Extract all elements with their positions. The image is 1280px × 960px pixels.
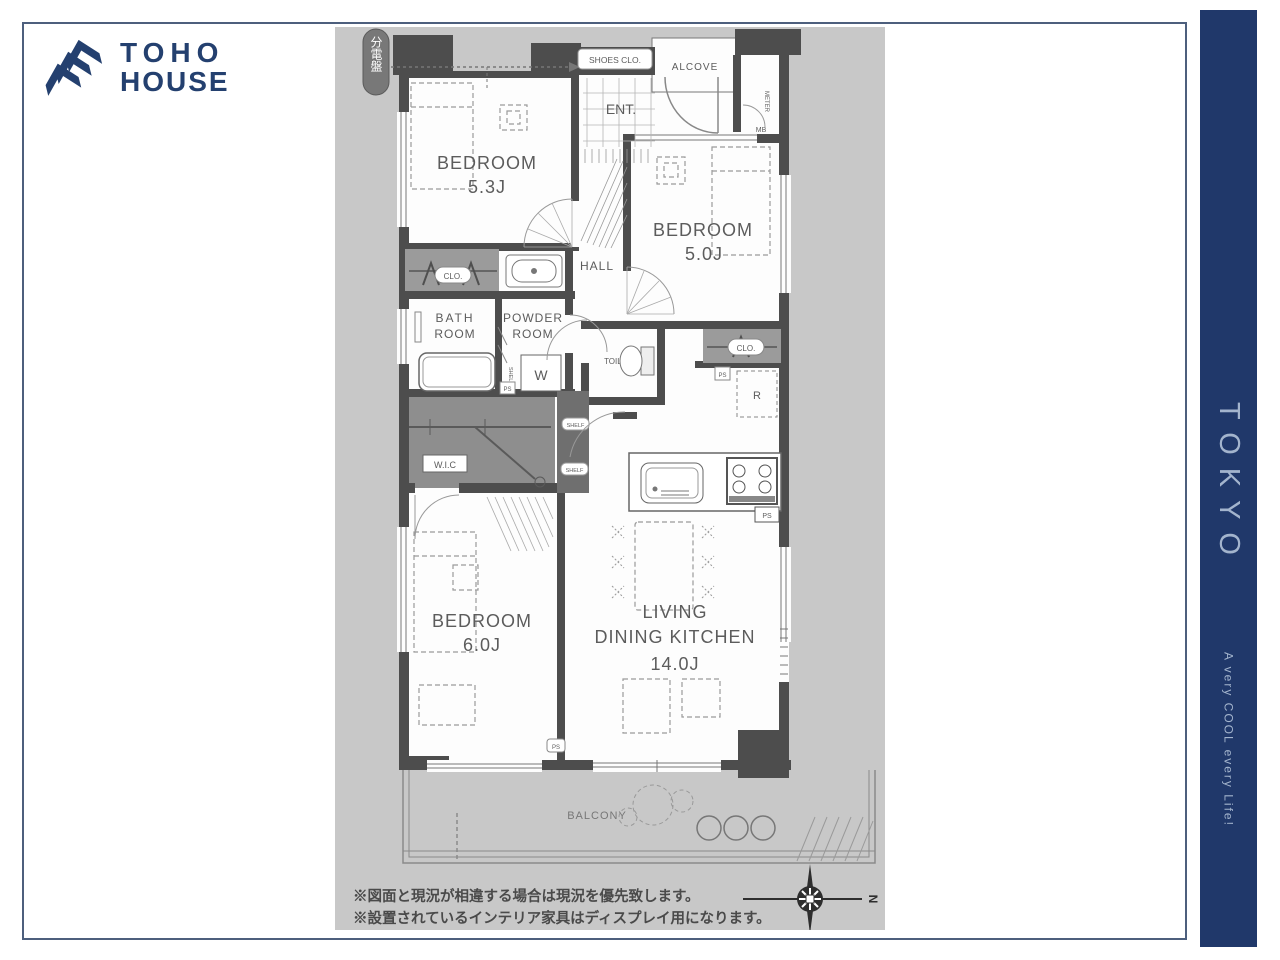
ps1-label: PS bbox=[503, 387, 511, 393]
toho-house-logo-icon bbox=[40, 36, 106, 98]
bedroom3-size: 6.0J bbox=[463, 635, 501, 655]
ps3-label: PS bbox=[762, 513, 772, 520]
closet1: CLO. bbox=[405, 249, 499, 291]
compass-north-label: N bbox=[866, 895, 880, 904]
ldk-label-line1: LIVING bbox=[642, 602, 707, 622]
brand-name-line1: TOHO bbox=[120, 38, 230, 67]
meter-box-label: MB bbox=[756, 127, 767, 134]
entrance-label: ENT. bbox=[606, 101, 636, 117]
shoes-closet-label: SHOES CLO. bbox=[589, 55, 641, 65]
bedroom2-label: BEDROOM bbox=[653, 220, 753, 240]
banner-tagline: A very COOL every Life! bbox=[1222, 652, 1236, 827]
bathroom-label-line2: ROOM bbox=[434, 327, 475, 341]
brand-name-line2: HOUSE bbox=[120, 67, 230, 96]
right-banner: TOKYO A very COOL every Life! bbox=[1200, 10, 1257, 947]
meter-label: METER bbox=[763, 91, 769, 113]
ldk-size: 14.0J bbox=[650, 654, 699, 674]
bedroom1-label: BEDROOM bbox=[437, 153, 537, 173]
breaker-panel-label: 分電盤 bbox=[369, 36, 383, 72]
bedroom2-size: 5.0J bbox=[685, 244, 723, 264]
balcony-area bbox=[403, 770, 875, 863]
powder-label-line1: POWDER bbox=[503, 311, 563, 325]
brand-logo: TOHO HOUSE bbox=[40, 36, 230, 98]
bathroom-label-line1: BATH bbox=[435, 311, 474, 325]
powder-label-line2: ROOM bbox=[512, 327, 553, 341]
bedroom3-label: BEDROOM bbox=[432, 611, 532, 631]
ps2-label: PS bbox=[718, 373, 726, 379]
disclaimer-line1: ※図面と現況が相違する場合は現況を優先致します。 bbox=[353, 887, 700, 905]
bedroom1-size: 5.3J bbox=[468, 177, 506, 197]
washer-label: W bbox=[534, 367, 548, 383]
ldk-label-line2: DINING KITCHEN bbox=[594, 627, 755, 647]
balcony-furniture: BALCONY bbox=[567, 785, 775, 840]
alcove-label: ALCOVE bbox=[672, 62, 719, 73]
shelf1-label: SHELF bbox=[567, 423, 585, 429]
powder-basin bbox=[506, 255, 562, 287]
disclaimer-line2: ※設置されているインテリア家具はディスプレイ用になります。 bbox=[353, 909, 771, 927]
shelf2-label: SHELF bbox=[566, 468, 584, 474]
floor-plan-panel: 分電盤 SHOES CLO. ENT. ALCOVE ME bbox=[335, 27, 885, 930]
banner-title: TOKYO bbox=[1212, 402, 1245, 568]
hall-label: HALL bbox=[580, 259, 614, 273]
closet2-label: CLO. bbox=[737, 344, 756, 353]
fridge-label: R bbox=[753, 390, 761, 402]
wic-label: W.I.C bbox=[434, 460, 456, 470]
floor-plan: 分電盤 SHOES CLO. ENT. ALCOVE ME bbox=[335, 27, 885, 930]
ps4-label: PS bbox=[552, 745, 560, 751]
closet1-label: CLO. bbox=[444, 272, 463, 281]
balcony-label: BALCONY bbox=[567, 810, 627, 822]
